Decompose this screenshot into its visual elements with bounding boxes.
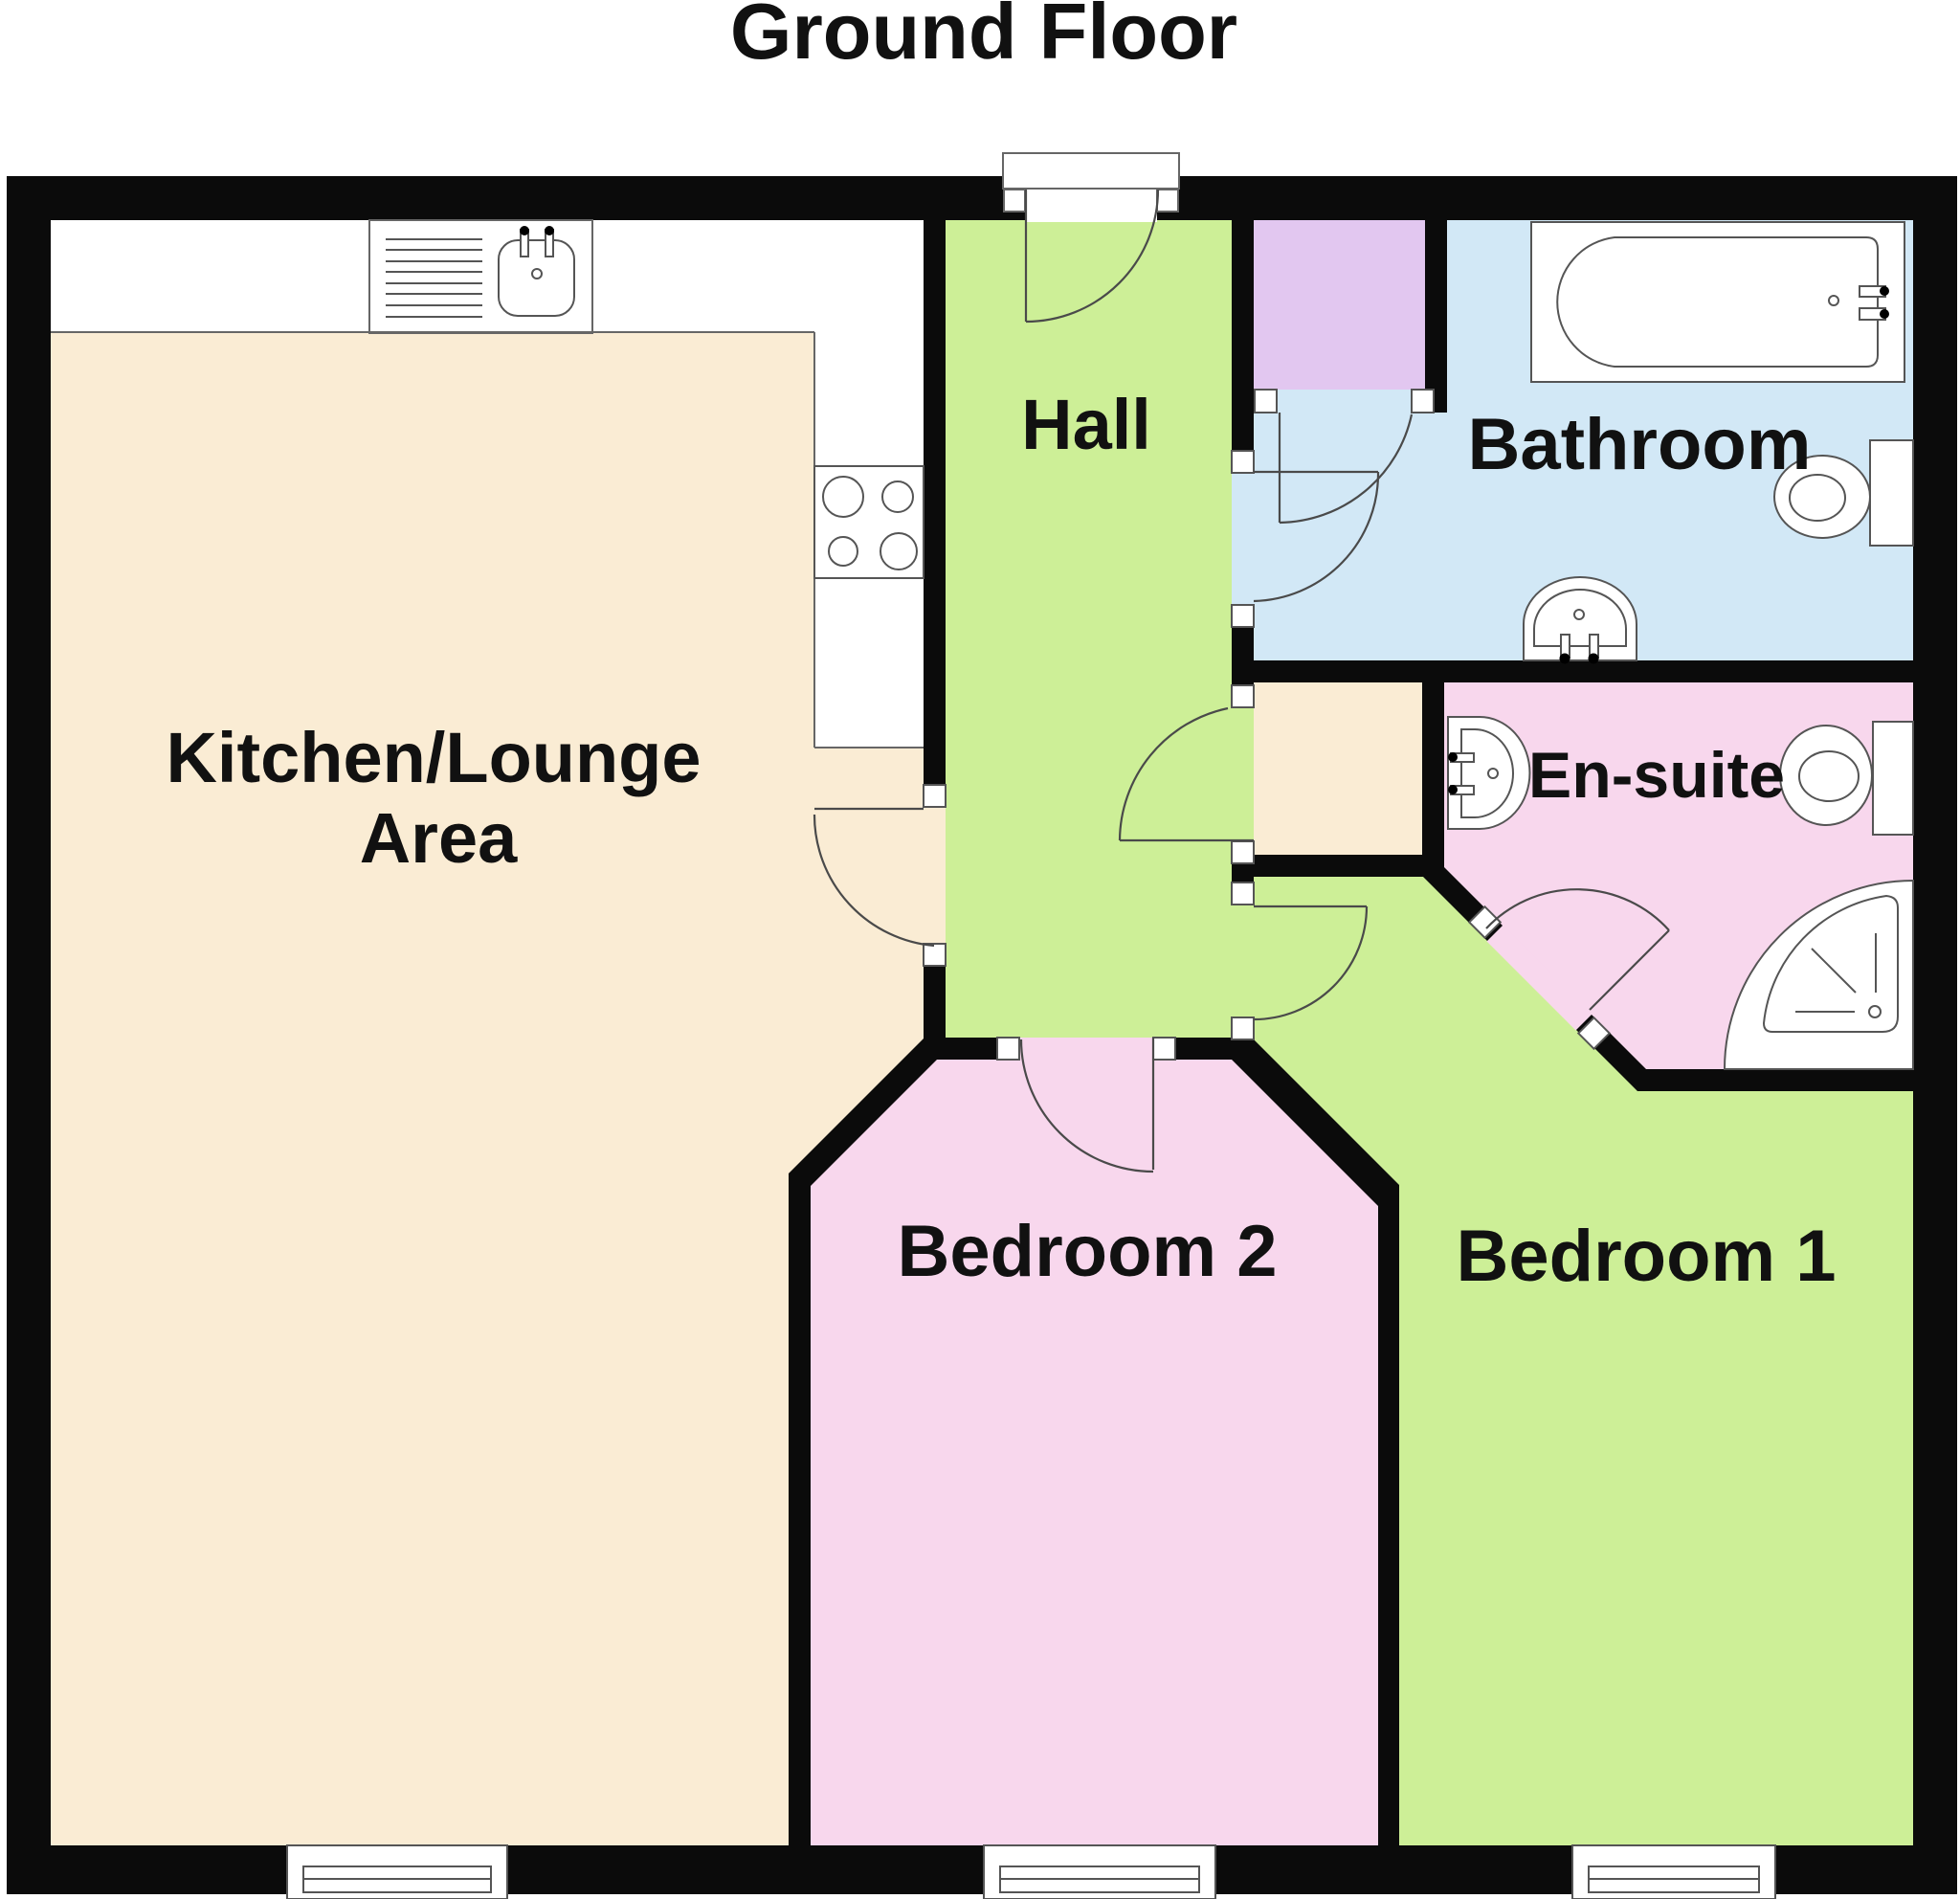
svg-text:En-suite: En-suite [1528, 739, 1785, 812]
svg-text:Ground Floor: Ground Floor [730, 0, 1237, 76]
svg-text:Bathroom: Bathroom [1468, 404, 1812, 485]
svg-text:Hall: Hall [1021, 385, 1151, 464]
svg-text:Bedroom 1: Bedroom 1 [1457, 1216, 1837, 1297]
svg-text:Bedroom 2: Bedroom 2 [898, 1211, 1278, 1292]
svg-text:Kitchen/Lounge: Kitchen/Lounge [166, 718, 701, 797]
svg-text:Area: Area [360, 798, 518, 878]
